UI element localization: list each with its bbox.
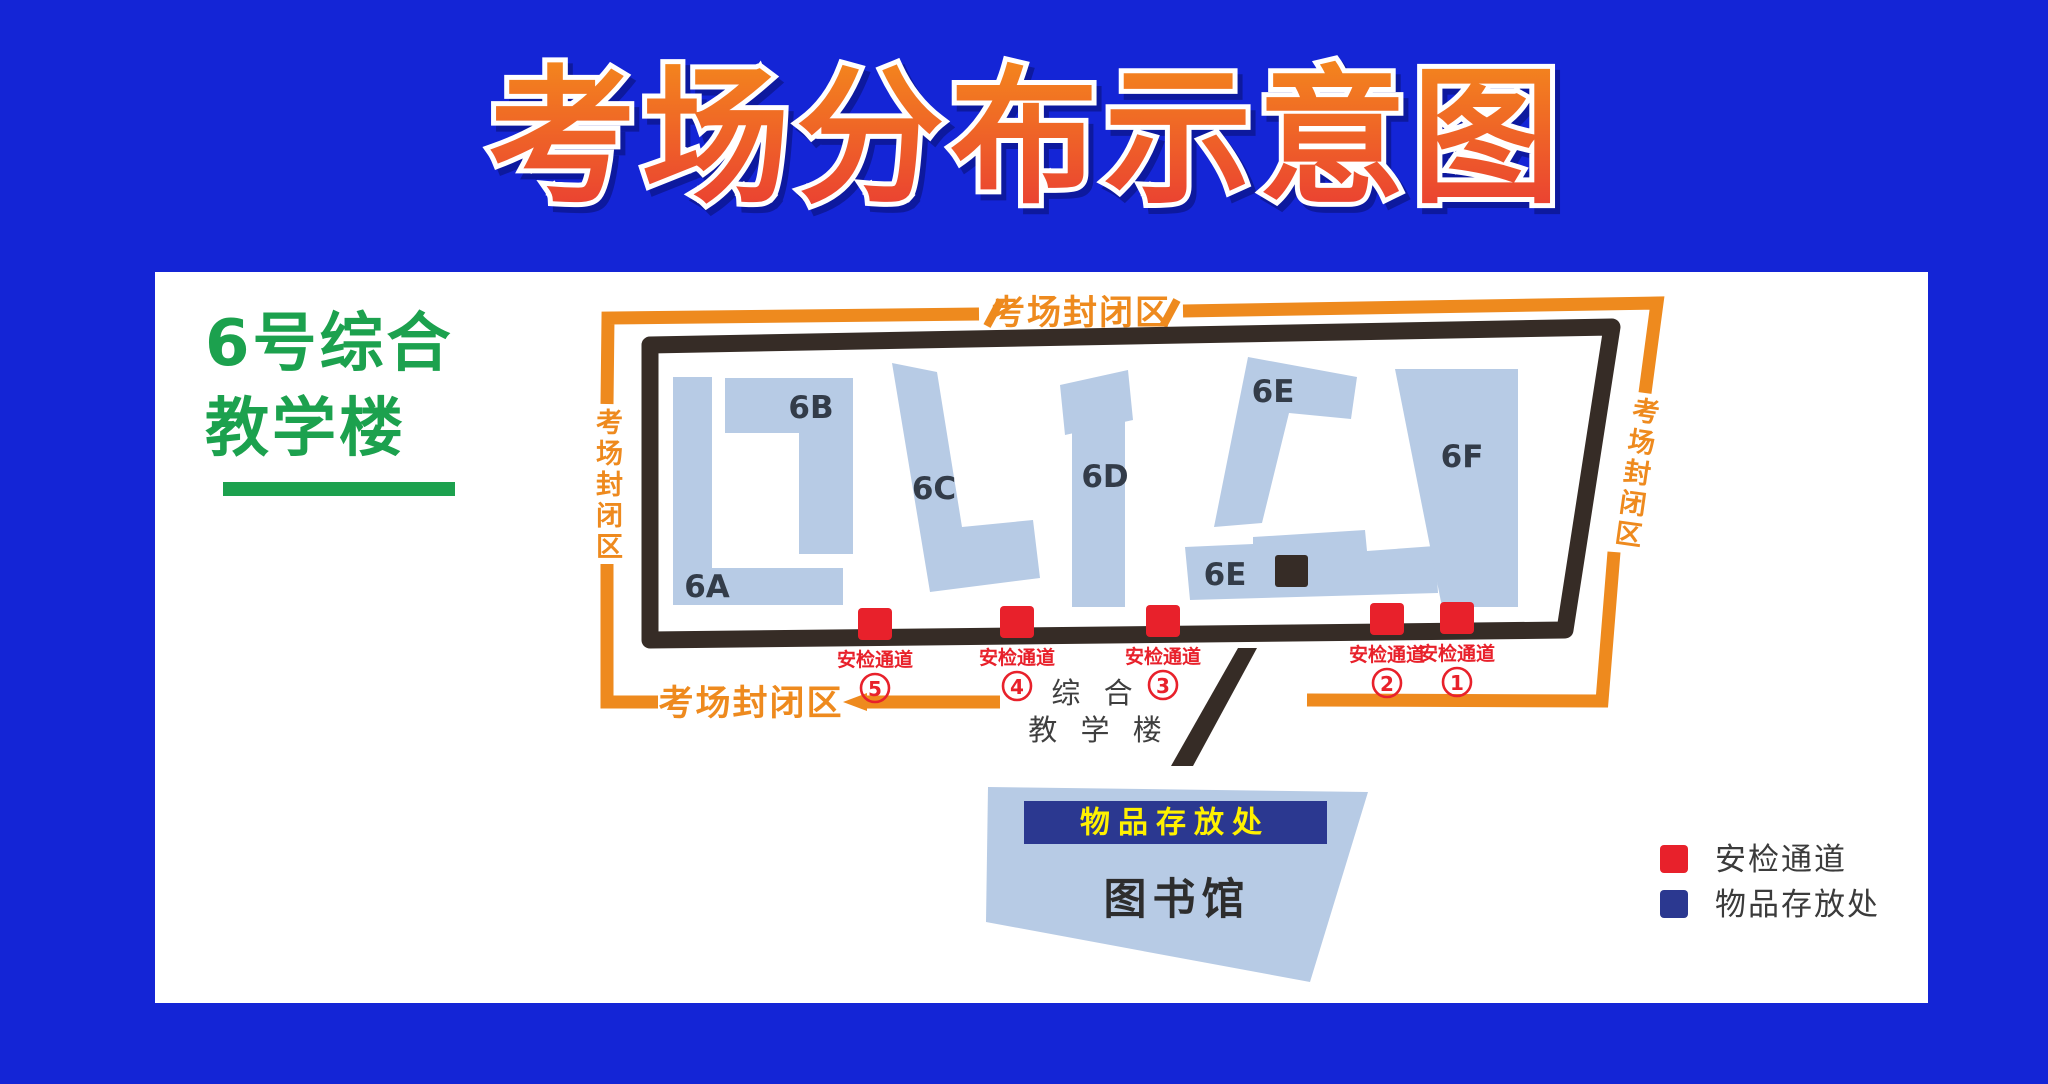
checkpoint-1-number: 1	[1450, 671, 1464, 695]
storage-banner-label: 物品存放处	[1080, 806, 1270, 841]
closed-area-label-left: 考场封闭区	[587, 408, 626, 568]
checkpoint-3-label: 安检通道	[1125, 645, 1201, 668]
building-6c-label: 6C	[912, 471, 956, 507]
building-6b-label: 6B	[788, 390, 833, 426]
checkpoint-3-number: 3	[1156, 674, 1170, 698]
library-label: 图书馆	[1104, 875, 1251, 925]
checkpoint-2-number: 2	[1380, 672, 1394, 696]
checkpoint-2: 安检通道 2	[1349, 603, 1425, 697]
building-6e-upper-label: 6E	[1252, 374, 1295, 410]
checkpoint-4-number: 4	[1010, 675, 1024, 699]
campus-map: 考场封闭区 考场封闭区 6A 6B 6C 6D 6E 6E 6F	[155, 272, 1928, 1003]
building-6f-label: 6F	[1441, 439, 1484, 475]
legend-storage-label: 物品存放处	[1715, 887, 1880, 923]
checkpoint-1-square	[1440, 602, 1474, 634]
checkpoint-2-square	[1370, 603, 1404, 635]
checkpoint-3-square	[1146, 605, 1180, 637]
checkpoint-5-label: 安检通道	[837, 648, 913, 671]
building-6e-lower-label: 6E	[1204, 557, 1247, 593]
exam-map-poster: { "title": "考场分布示意图", "building_heading"…	[0, 0, 2048, 1084]
building-6d-shape	[1072, 383, 1125, 607]
legend: 安检通道 物品存放处	[1660, 842, 1880, 923]
building-6b-south-wing-shape	[799, 432, 853, 554]
checkpoint-1: 安检通道 1	[1419, 602, 1495, 696]
checkpoint-1-label: 安检通道	[1419, 642, 1495, 665]
checkpoints: 安检通道 5 安检通道 4 安检通道 3 安检通道 2	[837, 602, 1495, 702]
teaching-note-line1: 综 合	[1051, 677, 1140, 710]
checkpoint-5-square	[858, 608, 892, 640]
poster-title-art: 考场分布示意图	[0, 0, 2048, 250]
teaching-note-line2: 教 学 楼	[1028, 714, 1170, 747]
map-panel: 6号综合 教学楼 考场封闭区 考场封闭区	[155, 272, 1928, 1003]
checkpoint-4: 安检通道 4	[979, 606, 1055, 700]
building-6d-label: 6D	[1081, 459, 1128, 495]
closed-area-label-top: 考场封闭区	[991, 293, 1171, 333]
checkpoint-4-label: 安检通道	[979, 646, 1055, 669]
legend-storage-swatch	[1660, 890, 1688, 918]
closed-area-label-bottom: 考场封闭区	[658, 684, 843, 724]
page-title: 考场分布示意图	[488, 52, 1566, 224]
service-block-square	[1275, 555, 1308, 587]
checkpoint-5-number: 5	[868, 677, 882, 701]
checkpoint-4-square	[1000, 606, 1034, 638]
legend-checkpoint-swatch	[1660, 845, 1688, 873]
checkpoint-5: 安检通道 5	[837, 608, 913, 702]
checkpoint-2-label: 安检通道	[1349, 643, 1425, 666]
building-6a-label: 6A	[684, 569, 730, 605]
legend-checkpoint-label: 安检通道	[1715, 842, 1847, 878]
